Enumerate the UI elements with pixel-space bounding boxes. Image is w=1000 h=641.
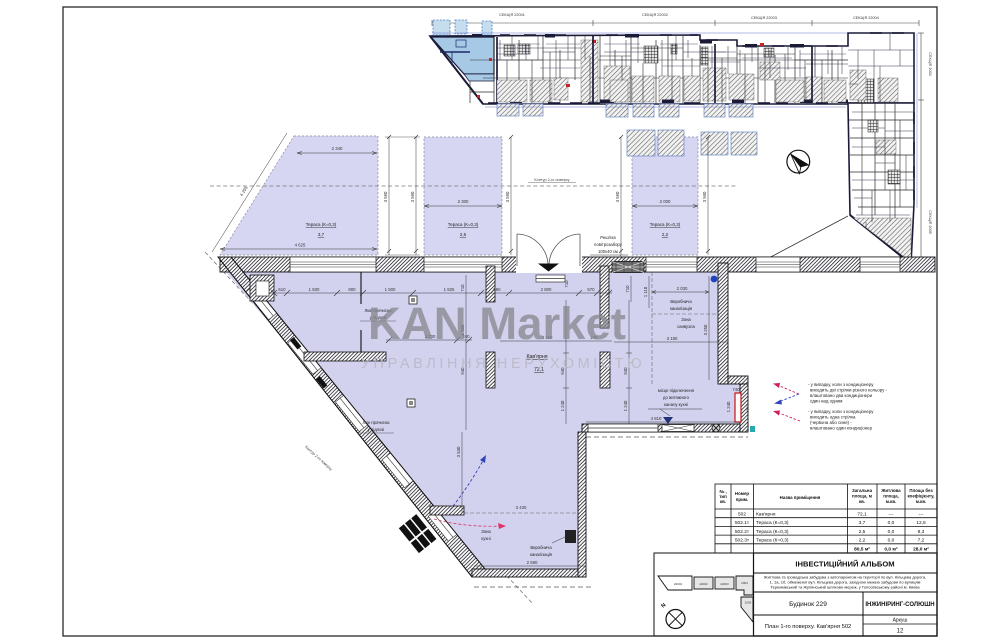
- svg-text:510: 510: [278, 287, 286, 292]
- svg-text:План 1-го поверху. Кав'ярня 50: План 1-го поверху. Кав'ярня 502: [765, 624, 852, 630]
- svg-text:у підлозі: у підлозі: [368, 427, 385, 432]
- svg-text:кухні: кухні: [481, 536, 490, 541]
- svg-text:влаштовано один кондиціонер: влаштовано один кондиціонер: [810, 426, 873, 431]
- svg-text:Виробнича: Виробнича: [670, 299, 692, 304]
- svg-text:900: 900: [348, 287, 356, 292]
- svg-text:100х40 см: 100х40 см: [598, 249, 618, 254]
- svg-text:Тераса (К=0,3): Тераса (К=0,3): [650, 222, 681, 227]
- svg-text:(червона або синя) -: (червона або синя) -: [810, 420, 852, 425]
- svg-text:3 180: 3 180: [667, 336, 678, 341]
- svg-text:502.1т: 502.1т: [735, 520, 750, 526]
- svg-text:Номер: Номер: [735, 491, 749, 496]
- svg-text:502: 502: [738, 512, 746, 518]
- svg-text:3 250: 3 250: [703, 324, 708, 335]
- svg-text:2 340: 2 340: [332, 146, 343, 151]
- svg-text:Тераса (К=0,3): Тераса (К=0,3): [756, 538, 789, 544]
- svg-text:3,7: 3,7: [318, 232, 325, 237]
- svg-text:2,5: 2,5: [460, 232, 467, 237]
- svg-text:каналізація: каналізація: [530, 552, 552, 557]
- svg-text:1 240: 1 240: [726, 401, 731, 412]
- svg-text:1 110: 1 110: [643, 286, 648, 297]
- svg-text:740: 740: [732, 387, 740, 392]
- svg-text:502.3т: 502.3т: [735, 538, 750, 544]
- svg-text:Тераса (К=0,3): Тераса (К=0,3): [756, 520, 789, 526]
- svg-text:2 300: 2 300: [458, 199, 469, 204]
- svg-text:Люк прочисна: Люк прочисна: [363, 420, 391, 425]
- svg-text:каналу кухні: каналу кухні: [664, 402, 688, 407]
- svg-text:1 240: 1 240: [623, 400, 628, 411]
- svg-text:м.кв.: м.кв.: [916, 499, 927, 504]
- svg-text:2,5: 2,5: [859, 529, 866, 535]
- svg-text:Контур 2-го поверху: Контур 2-го поверху: [534, 178, 569, 182]
- svg-text:3 430: 3 430: [516, 505, 527, 510]
- svg-text:коефіцієнту,: коефіцієнту,: [908, 494, 935, 499]
- svg-text:12,5: 12,5: [916, 520, 926, 526]
- svg-text:570: 570: [587, 287, 595, 292]
- svg-text:до витяжного: до витяжного: [663, 395, 690, 400]
- svg-text:СЕКЦІЯ 2005: СЕКЦІЯ 2005: [928, 210, 932, 234]
- svg-text:Площа без: Площа без: [909, 488, 933, 493]
- svg-text:Зона: Зона: [481, 529, 491, 534]
- svg-text:Тераса (К=0,3): Тераса (К=0,3): [306, 222, 337, 227]
- svg-text:ІНЖИНІРИНГ-СОЛЮШН: ІНЖИНІРИНГ-СОЛЮШН: [865, 602, 934, 608]
- svg-text:Будинок 229: Будинок 229: [789, 601, 827, 608]
- svg-text:2 800: 2 800: [541, 287, 552, 292]
- svg-text:СЕКЦІЯ 22001: СЕКЦІЯ 22001: [499, 13, 525, 17]
- svg-text:1 825: 1 825: [444, 287, 455, 292]
- svg-text:Виробнича: Виробнича: [530, 545, 552, 550]
- svg-text:3 590: 3 590: [410, 191, 415, 202]
- svg-text:УПРАВЛІННЯ НЕРУХОМІСТЮ: УПРАВЛІННЯ НЕРУХОМІСТЮ: [361, 356, 645, 372]
- svg-text:0,0 м²: 0,0 м²: [884, 547, 898, 553]
- svg-text:3,7: 3,7: [859, 520, 866, 526]
- svg-text:Тераса (К=0,3): Тераса (К=0,3): [448, 222, 479, 227]
- svg-text:- у випадку, коли з кондиціоне: - у випадку, коли з кондиціонеру: [808, 409, 874, 414]
- svg-text:1 500: 1 500: [309, 287, 320, 292]
- svg-text:1 240: 1 240: [560, 400, 565, 411]
- svg-text:2 030: 2 030: [677, 286, 688, 291]
- svg-text:590: 590: [493, 287, 501, 292]
- svg-text:прим.: прим.: [736, 497, 749, 502]
- svg-text:Кав'ярня: Кав'ярня: [756, 512, 776, 518]
- svg-text:7,2: 7,2: [918, 538, 925, 544]
- svg-text:3 530: 3 530: [456, 446, 461, 457]
- svg-text:ПК: ПК: [745, 406, 749, 412]
- svg-text:0,0: 0,0: [888, 529, 895, 535]
- svg-text:м.кв.: м.кв.: [886, 499, 897, 504]
- svg-text:влаштовано два кондиціонери: влаштовано два кондиціонери: [810, 393, 873, 398]
- svg-text:один над одним: один над одним: [810, 399, 842, 404]
- svg-text:- у випадку, коли з кондиціоне: - у випадку, коли з кондиціонеру: [808, 382, 874, 387]
- svg-text:710: 710: [625, 285, 630, 293]
- svg-text:Аркуш: Аркуш: [893, 618, 908, 624]
- svg-text:4 625: 4 625: [295, 243, 306, 248]
- svg-text:502.2т: 502.2т: [735, 529, 750, 535]
- svg-text:2 590: 2 590: [527, 560, 538, 565]
- svg-text:22001: 22001: [674, 582, 683, 586]
- svg-text:санвузла: санвузла: [677, 324, 695, 329]
- svg-text:виходить одна стрілка: виходить одна стрілка: [810, 415, 856, 420]
- svg-text:місце підключення: місце підключення: [658, 388, 694, 393]
- svg-text:каналізація: каналізація: [670, 306, 692, 311]
- svg-text:12: 12: [897, 629, 904, 635]
- svg-text:2,2: 2,2: [662, 232, 669, 237]
- svg-text:28,0 м²: 28,0 м²: [913, 547, 929, 553]
- svg-text:Назва приміщення: Назва приміщення: [780, 495, 821, 500]
- svg-text:710: 710: [564, 280, 569, 288]
- svg-text:Решітка: Решітка: [600, 235, 616, 240]
- svg-text:3 590: 3 590: [615, 191, 620, 202]
- svg-text:3 590: 3 590: [702, 191, 707, 202]
- svg-text:кв.: кв.: [859, 499, 865, 504]
- svg-text:площа,: площа,: [883, 494, 899, 499]
- svg-text:СЕКЦІЯ 22004: СЕКЦІЯ 22004: [853, 16, 879, 20]
- svg-text:710: 710: [460, 284, 465, 292]
- svg-text:Теремківський та Жулянський шл: Теремківський та Жулянський шляхово-мере…: [770, 585, 920, 590]
- svg-text:8,3: 8,3: [918, 529, 925, 535]
- svg-text:СЕКЦІЯ 2004: СЕКЦІЯ 2004: [928, 52, 932, 76]
- svg-text:2005: 2005: [745, 601, 752, 605]
- svg-text:СЕКЦІЯ 22003: СЕКЦІЯ 22003: [751, 16, 777, 20]
- svg-text:22002: 22002: [699, 582, 708, 586]
- svg-text:Тераса (К=0,3): Тераса (К=0,3): [756, 529, 789, 535]
- svg-text:2 000: 2 000: [660, 199, 671, 204]
- svg-text:кв.: кв.: [720, 499, 726, 504]
- svg-text:22003: 22003: [720, 582, 729, 586]
- svg-text:72,1: 72,1: [857, 512, 867, 518]
- svg-text:---: ---: [919, 513, 924, 518]
- svg-text:4 810: 4 810: [651, 416, 662, 421]
- svg-text:80,5 м²: 80,5 м²: [854, 547, 870, 553]
- svg-text:Зона: Зона: [681, 317, 691, 322]
- svg-text:0,0: 0,0: [888, 520, 895, 526]
- svg-text:3 590: 3 590: [383, 191, 388, 202]
- svg-text:Загальна: Загальна: [852, 488, 873, 493]
- svg-text:виходить дві стрілки різного к: виходить дві стрілки різного кольору -: [810, 388, 888, 393]
- svg-text:Житлова: Житлова: [880, 488, 901, 493]
- svg-text:1 500: 1 500: [385, 287, 396, 292]
- svg-text:ІНВЕСТИЦІЙНИЙ АЛЬБОМ: ІНВЕСТИЦІЙНИЙ АЛЬБОМ: [795, 560, 894, 569]
- svg-text:повітрозабору: повітрозабору: [594, 242, 623, 247]
- svg-text:0,0: 0,0: [888, 538, 895, 544]
- svg-text:2,2: 2,2: [859, 538, 866, 544]
- svg-text:2004: 2004: [741, 581, 748, 585]
- svg-text:KAN Market: KAN Market: [368, 298, 626, 349]
- svg-text:3 590: 3 590: [505, 191, 510, 202]
- svg-text:---: ---: [889, 513, 894, 518]
- svg-text:СЕКЦІЯ 22002: СЕКЦІЯ 22002: [642, 13, 668, 17]
- svg-text:площа, м: площа, м: [852, 494, 872, 499]
